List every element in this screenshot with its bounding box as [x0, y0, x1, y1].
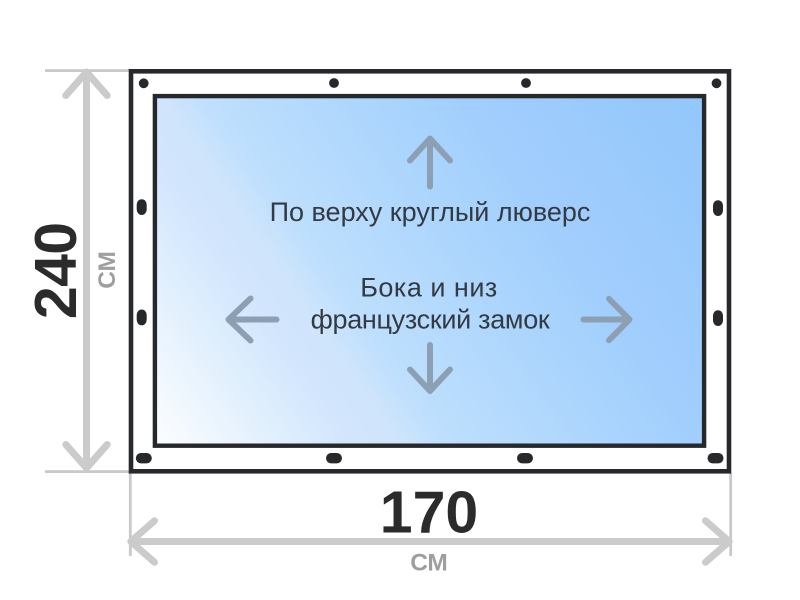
- svg-text:французский замок: французский замок: [311, 305, 550, 335]
- svg-text:170: 170: [380, 480, 478, 546]
- svg-text:Бока и низ: Бока и низ: [360, 273, 498, 303]
- svg-text:СМ: СМ: [410, 549, 447, 576]
- svg-text:По верху круглый люверс: По верху круглый люверс: [270, 197, 591, 227]
- svg-text:СМ: СМ: [94, 251, 121, 288]
- svg-text:240: 240: [23, 222, 89, 319]
